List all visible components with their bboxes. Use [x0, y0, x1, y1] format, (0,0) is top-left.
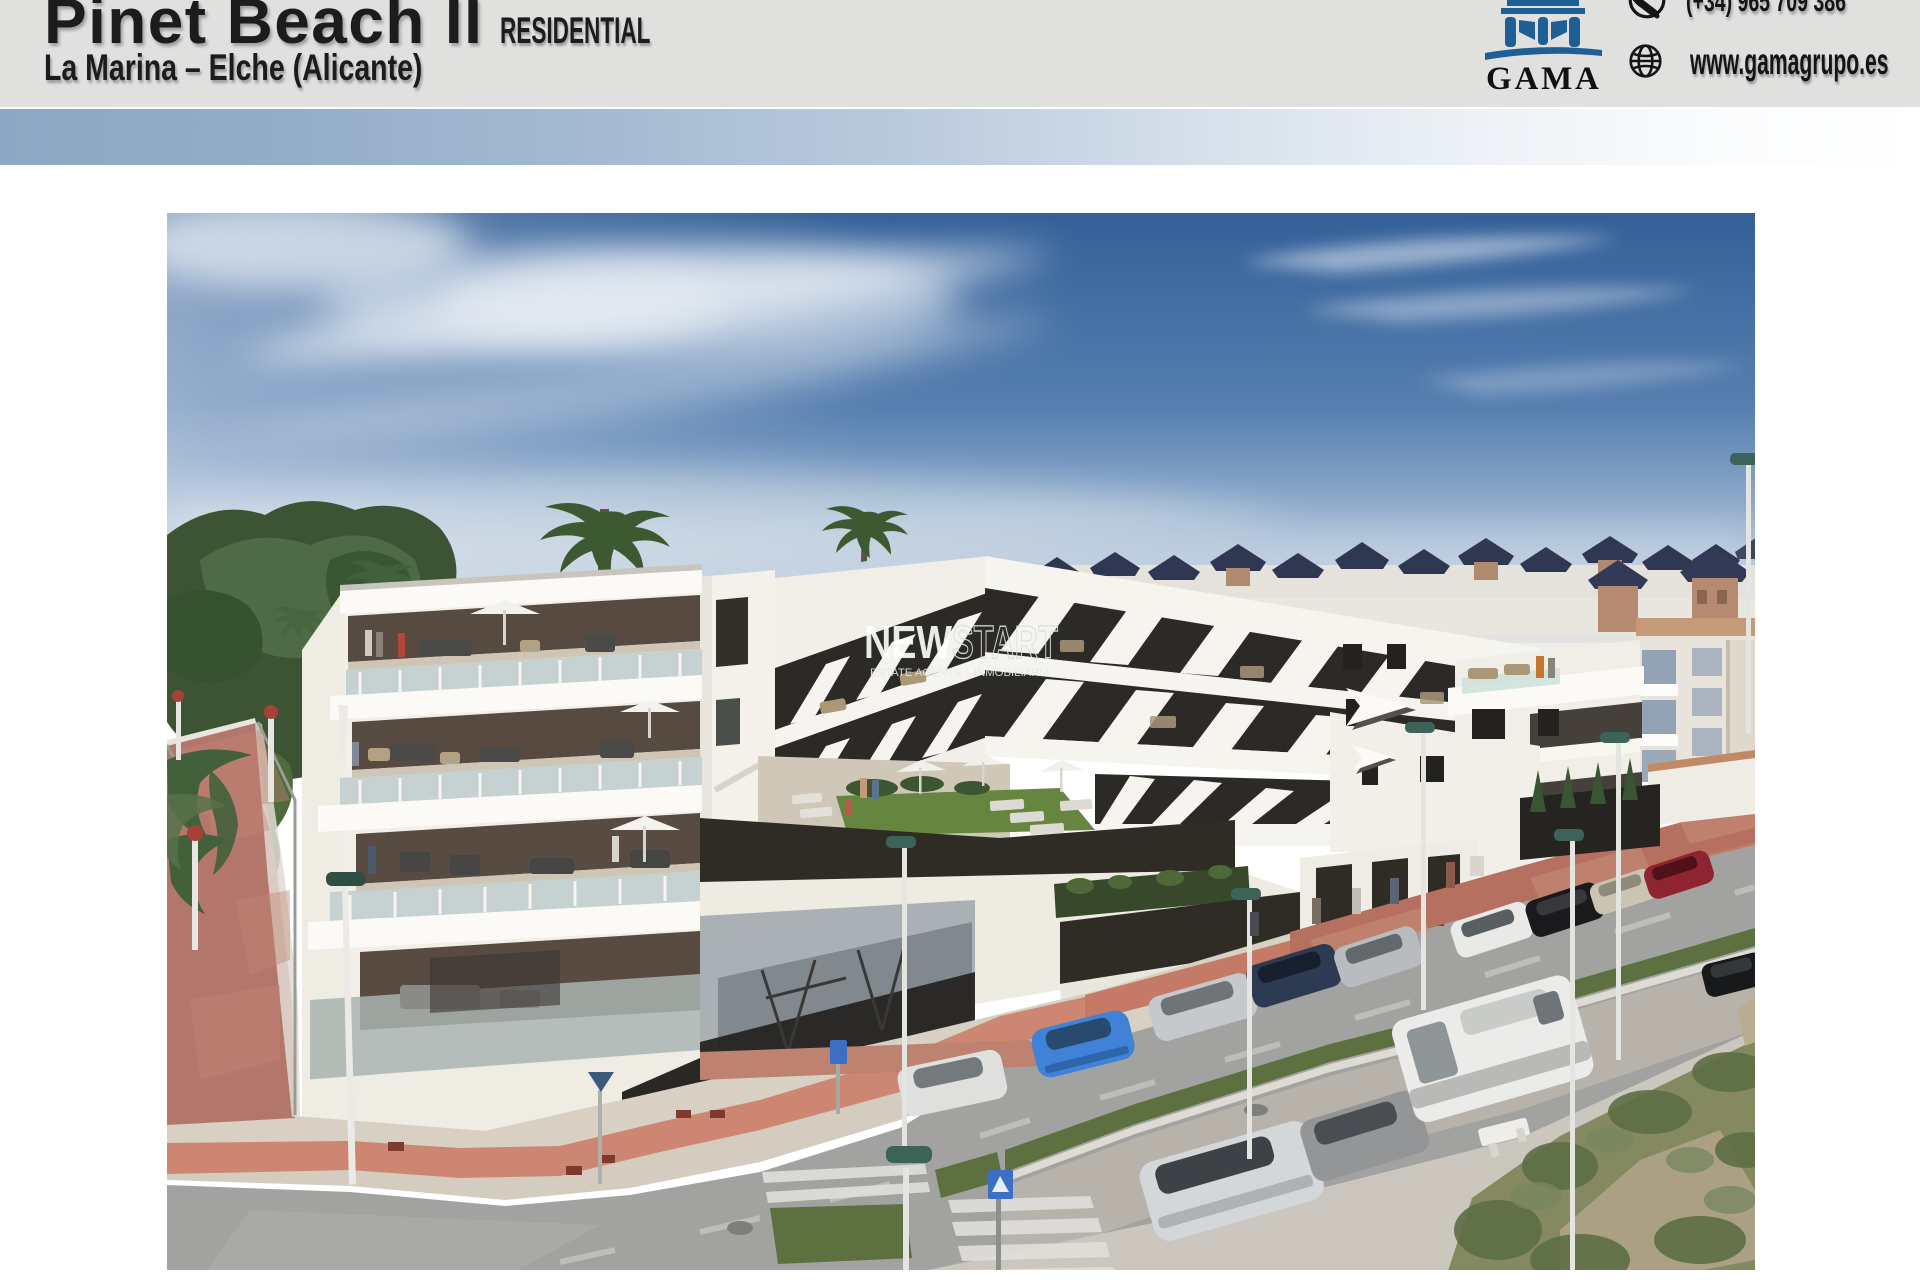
svg-text:ESTATE AGENTS – INMOBILIARIA: ESTATE AGENTS – INMOBILIARIA [870, 667, 1051, 679]
svg-text:NEW: NEW [864, 616, 952, 668]
svg-text:START: START [952, 616, 1058, 668]
